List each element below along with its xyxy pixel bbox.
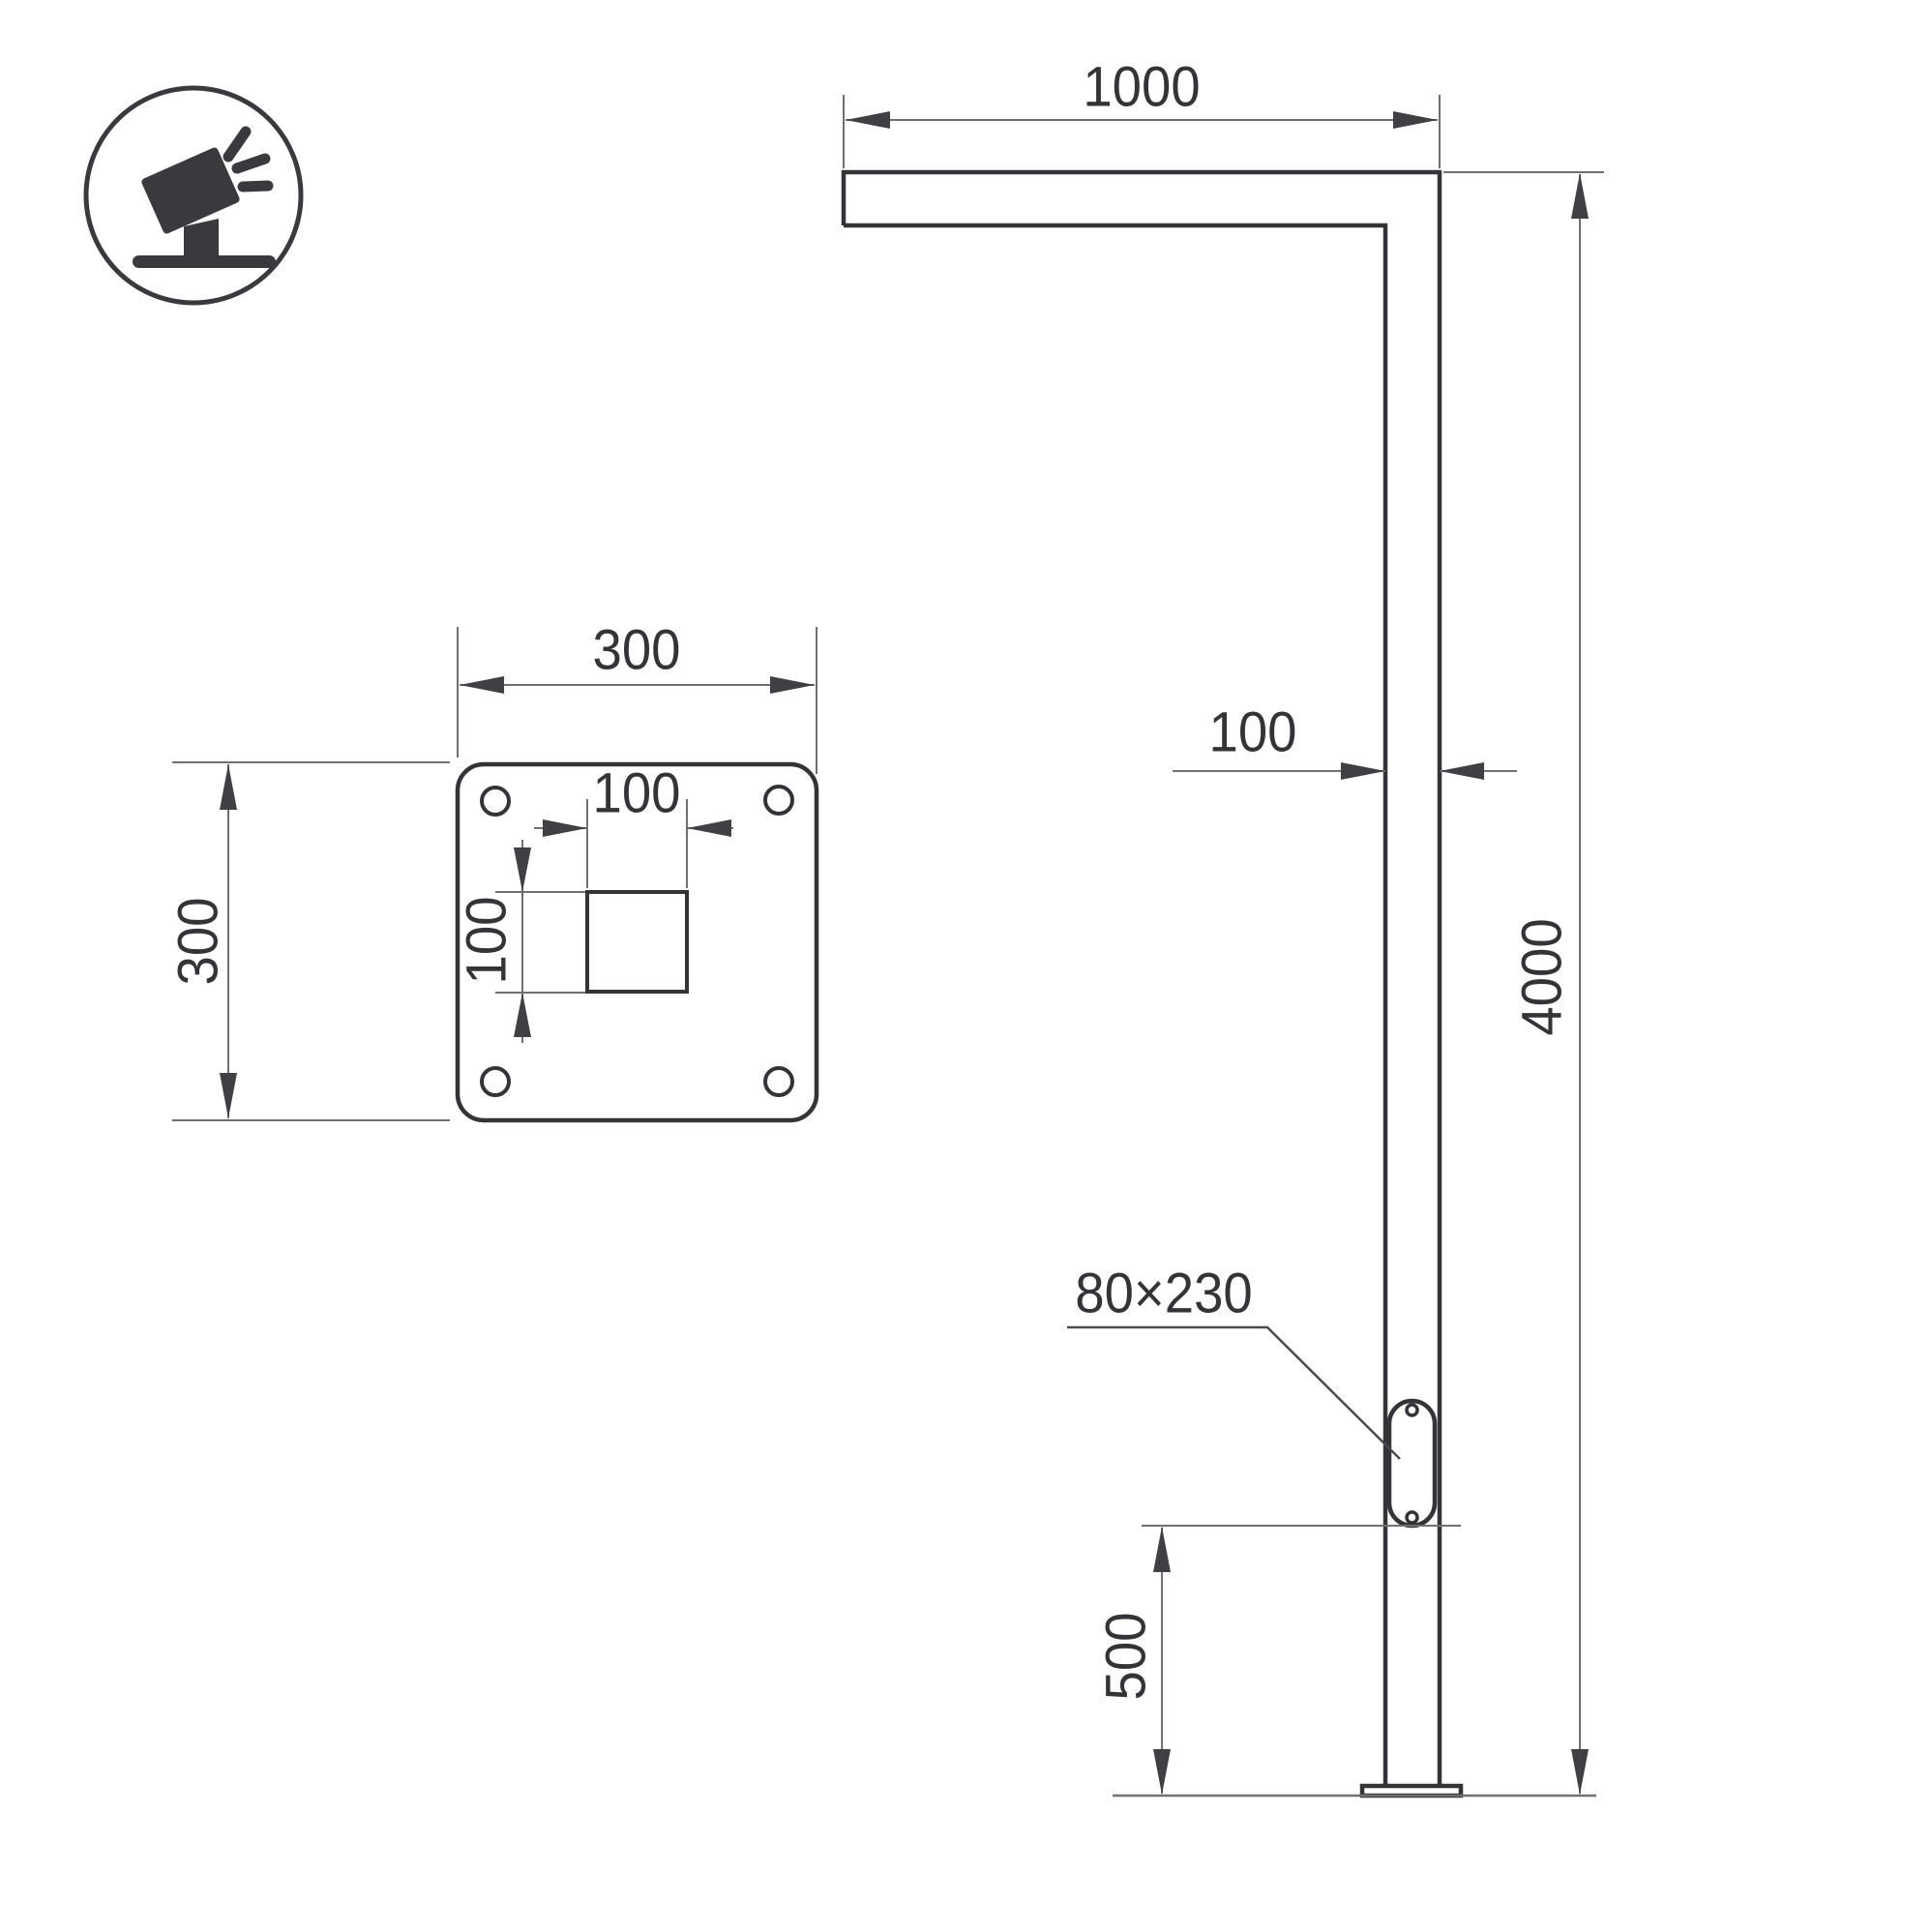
technical-drawing-canvas: 1000 100 4000 80×230 500 300 300 100 100 (0, 0, 1932, 1932)
dim-label-cutout-width: 100 (593, 761, 681, 826)
tilted-floodlight-icon (82, 83, 314, 315)
dim-label-arm-length: 1000 (1083, 55, 1200, 120)
dim-label-cutout-height: 100 (455, 897, 520, 985)
dim-door-offset (1142, 1526, 1461, 1795)
dim-label-door-offset: 500 (1094, 1613, 1159, 1701)
leader-door-size (1067, 1327, 1400, 1459)
dim-label-total-height: 4000 (1510, 918, 1575, 1035)
dim-label-plate-width: 300 (593, 618, 681, 683)
dim-label-door-size: 80×230 (1075, 1262, 1252, 1326)
dim-label-plate-height: 300 (166, 898, 231, 986)
dim-label-pole-width: 100 (1209, 700, 1297, 765)
front-view-pole (844, 172, 1461, 1796)
dim-pole-width (1173, 762, 1517, 780)
